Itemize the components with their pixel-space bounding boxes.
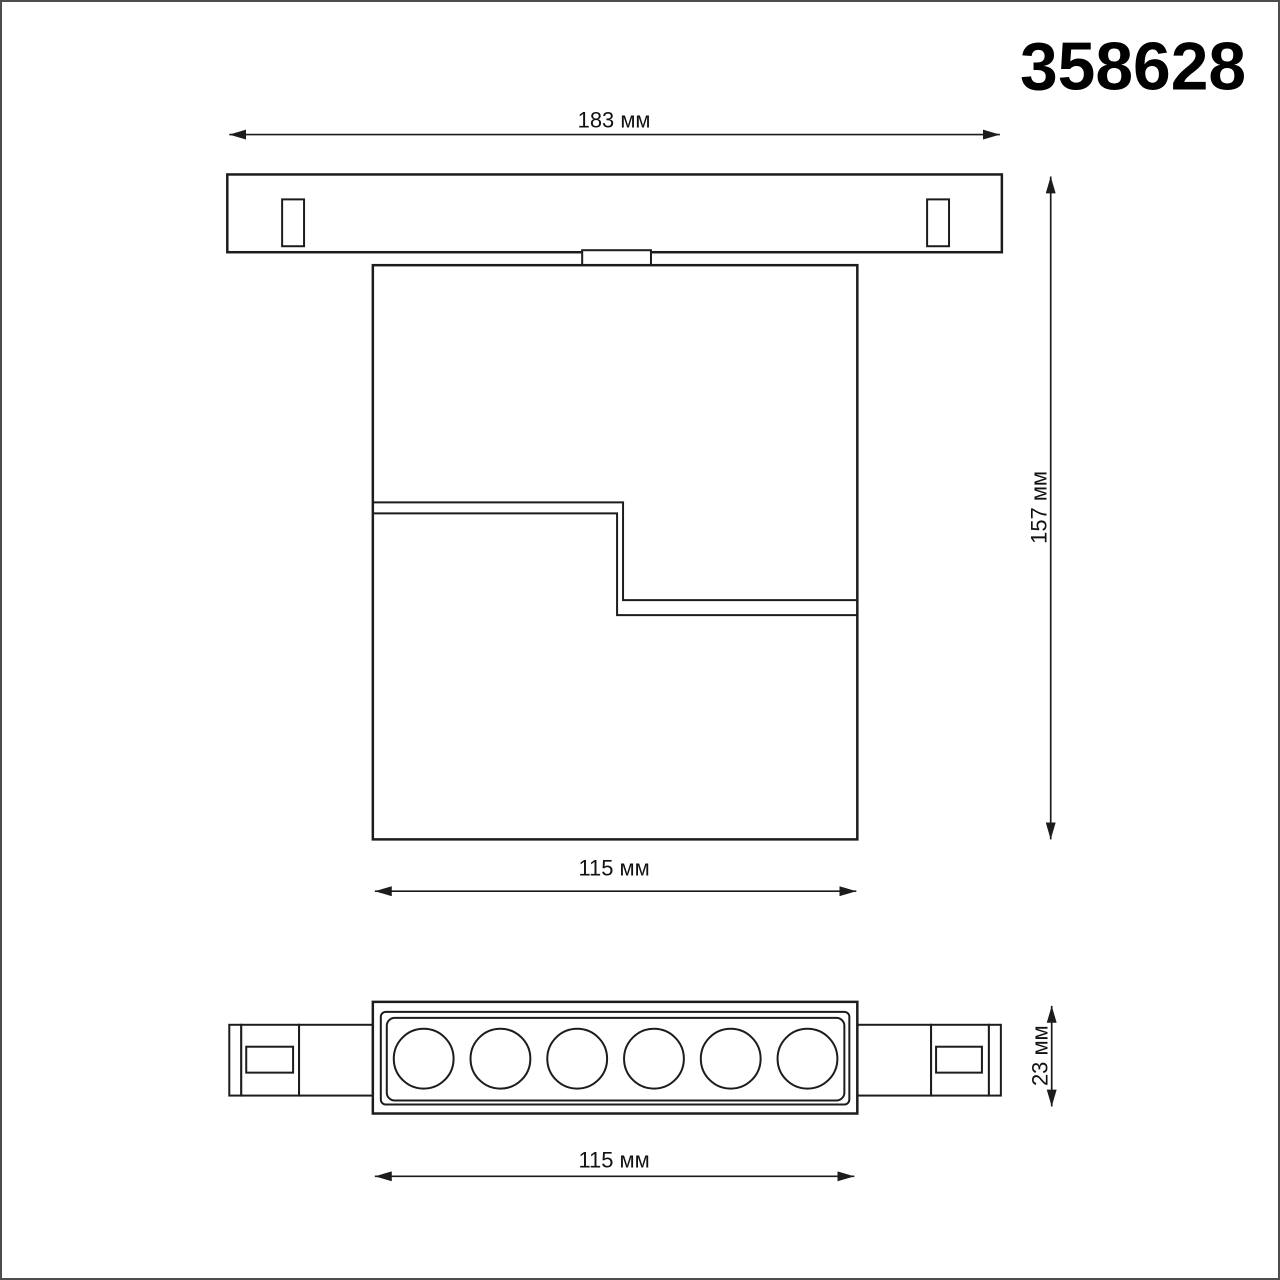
track-adapter bbox=[582, 250, 651, 266]
dimension-fixture-height: 23 мм bbox=[1028, 1006, 1053, 1107]
dimension-label-body-width: 115 мм bbox=[578, 855, 649, 880]
connector-end-cap-left bbox=[229, 1025, 241, 1096]
connector-window-left bbox=[246, 1047, 293, 1073]
dimension-label-fixture-height: 23 мм bbox=[1028, 1025, 1053, 1086]
lamp-body bbox=[373, 265, 857, 839]
connector-bar-left bbox=[299, 1025, 373, 1096]
dimension-body-width: 115 мм bbox=[375, 855, 856, 891]
bottom-view bbox=[229, 1002, 1001, 1114]
dimension-assembly-height: 157 мм bbox=[1027, 176, 1052, 839]
dimension-label-fixture-length: 115 мм bbox=[578, 1147, 649, 1172]
track-mount-slot-right bbox=[927, 199, 949, 246]
connector-window-right bbox=[936, 1047, 982, 1073]
dimension-label-track-length: 183 мм bbox=[578, 108, 651, 133]
track-mount-slot-left bbox=[282, 199, 304, 246]
connector-bar-right bbox=[857, 1025, 931, 1096]
dimension-fixture-length: 115 мм bbox=[375, 1147, 854, 1176]
drawing-page: 358628 183 мм 157 мм 115 мм bbox=[0, 0, 1280, 1280]
front-view bbox=[227, 174, 1002, 839]
track-base bbox=[227, 174, 1002, 252]
article-number: 358628 bbox=[1020, 30, 1246, 105]
connector-end-cap-right bbox=[989, 1025, 1001, 1096]
technical-drawing: 358628 183 мм 157 мм 115 мм bbox=[2, 2, 1278, 1278]
dimension-track-length: 183 мм bbox=[229, 108, 1000, 135]
dimension-label-assembly-height: 157 мм bbox=[1027, 471, 1052, 544]
